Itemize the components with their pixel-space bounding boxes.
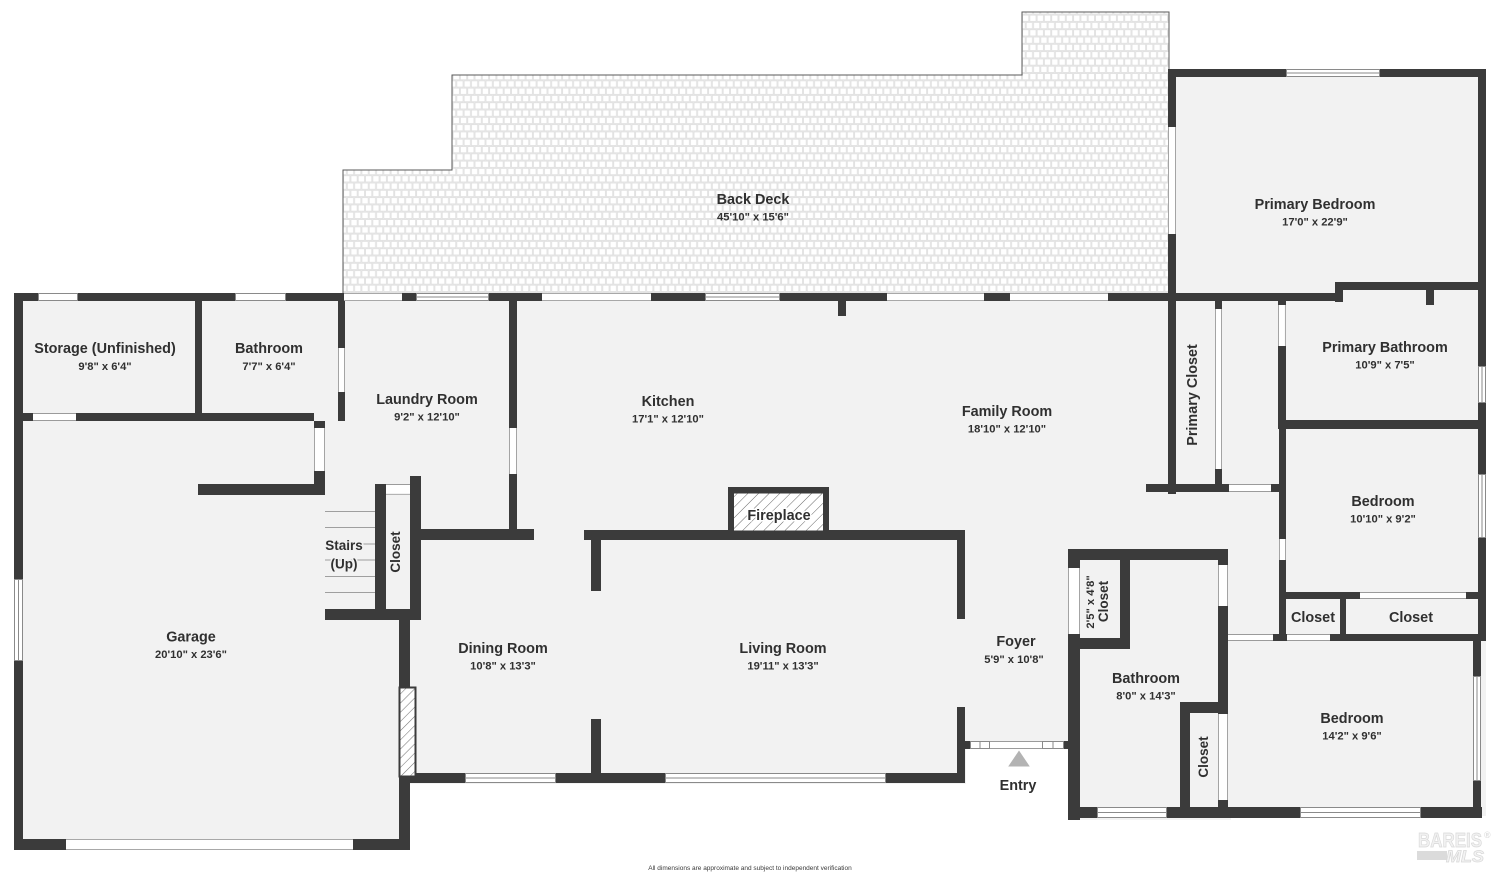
svg-text:18'10" x 12'10": 18'10" x 12'10" xyxy=(968,424,1046,436)
svg-text:8'0" x 14'3": 8'0" x 14'3" xyxy=(1116,691,1175,703)
svg-text:Family Room: Family Room xyxy=(962,404,1052,420)
svg-text:Primary Bathroom: Primary Bathroom xyxy=(1322,340,1448,356)
svg-text:Closet: Closet xyxy=(388,531,403,573)
svg-text:Kitchen: Kitchen xyxy=(642,394,695,410)
svg-text:17'0" x 22'9": 17'0" x 22'9" xyxy=(1282,217,1348,229)
svg-text:Living Room: Living Room xyxy=(739,641,826,657)
svg-text:Bedroom: Bedroom xyxy=(1351,494,1414,510)
svg-text:Stairs: Stairs xyxy=(325,538,363,553)
svg-text:Garage: Garage xyxy=(166,630,216,646)
svg-text:10'10" x 9'2": 10'10" x 9'2" xyxy=(1350,514,1416,526)
svg-text:7'7" x 6'4": 7'7" x 6'4" xyxy=(242,361,295,373)
svg-text:Back Deck: Back Deck xyxy=(717,192,791,208)
svg-text:Primary Closet: Primary Closet xyxy=(1185,344,1201,446)
svg-text:Storage (Unfinished): Storage (Unfinished) xyxy=(34,341,176,357)
svg-text:Closet: Closet xyxy=(1096,580,1111,622)
svg-text:14'2" x 9'6": 14'2" x 9'6" xyxy=(1322,731,1381,743)
svg-text:45'10" x 15'6": 45'10" x 15'6" xyxy=(717,212,789,224)
svg-text:(Up): (Up) xyxy=(331,557,358,572)
svg-text:2'5" x 4'8": 2'5" x 4'8" xyxy=(1085,575,1097,628)
svg-text:19'11" x 13'3": 19'11" x 13'3" xyxy=(747,661,818,673)
svg-text:10'8" x 13'3": 10'8" x 13'3" xyxy=(470,661,536,673)
svg-text:Entry: Entry xyxy=(1000,778,1037,794)
svg-text:Primary Bedroom: Primary Bedroom xyxy=(1255,197,1376,213)
svg-text:Dining Room: Dining Room xyxy=(458,641,548,657)
svg-text:20'10" x 23'6": 20'10" x 23'6" xyxy=(155,649,227,661)
svg-text:10'9" x 7'5": 10'9" x 7'5" xyxy=(1355,360,1414,372)
svg-text:All dimensions are approximate: All dimensions are approximate and subje… xyxy=(648,865,852,872)
svg-text:Bathroom: Bathroom xyxy=(235,341,303,357)
svg-text:Foyer: Foyer xyxy=(996,634,1036,650)
svg-text:9'8" x 6'4": 9'8" x 6'4" xyxy=(78,361,131,373)
svg-text:®: ® xyxy=(1484,830,1491,840)
svg-text:MLS: MLS xyxy=(1446,847,1485,866)
svg-text:Bedroom: Bedroom xyxy=(1320,711,1383,727)
svg-text:Laundry Room: Laundry Room xyxy=(376,392,478,408)
svg-text:Closet: Closet xyxy=(1291,610,1335,626)
svg-text:Closet: Closet xyxy=(1389,610,1433,626)
svg-text:Closet: Closet xyxy=(1196,736,1211,778)
svg-text:5'9" x 10'8": 5'9" x 10'8" xyxy=(984,654,1043,666)
svg-text:Bathroom: Bathroom xyxy=(1112,671,1180,687)
svg-text:Fireplace: Fireplace xyxy=(747,508,810,524)
svg-text:17'1" x 12'10": 17'1" x 12'10" xyxy=(632,414,704,426)
svg-text:9'2" x 12'10": 9'2" x 12'10" xyxy=(394,412,460,424)
